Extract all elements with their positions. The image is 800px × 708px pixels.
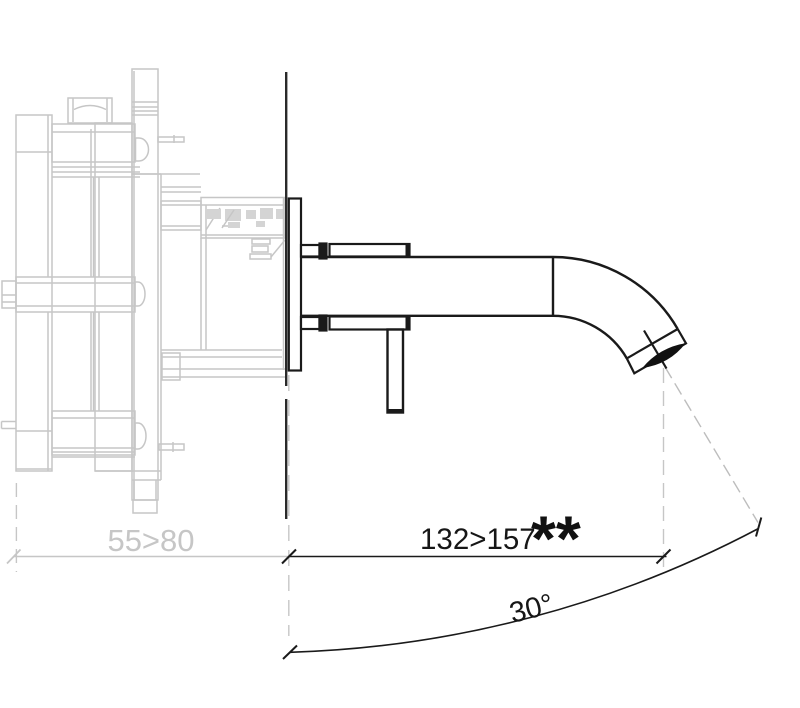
svg-text:55>80: 55>80: [107, 523, 194, 558]
svg-text:132>157: 132>157: [420, 523, 536, 556]
svg-text:**: **: [531, 503, 581, 575]
